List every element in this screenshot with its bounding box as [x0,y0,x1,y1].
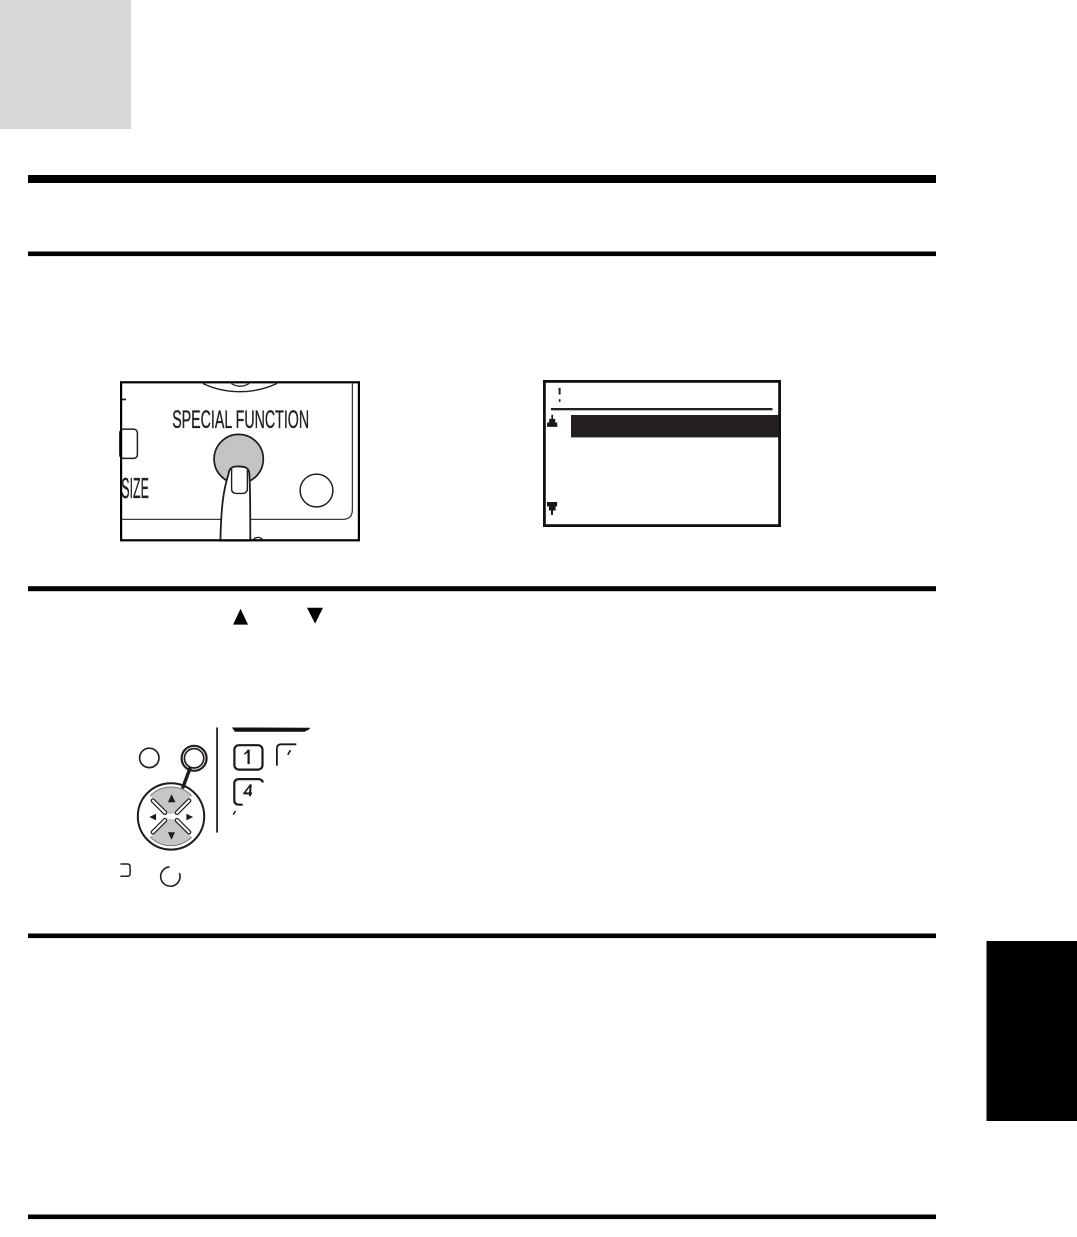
svg-text:SPECIAL FUNCTION: SPECIAL FUNCTION [172,407,309,434]
svg-text:SIZE: SIZE [121,473,149,505]
